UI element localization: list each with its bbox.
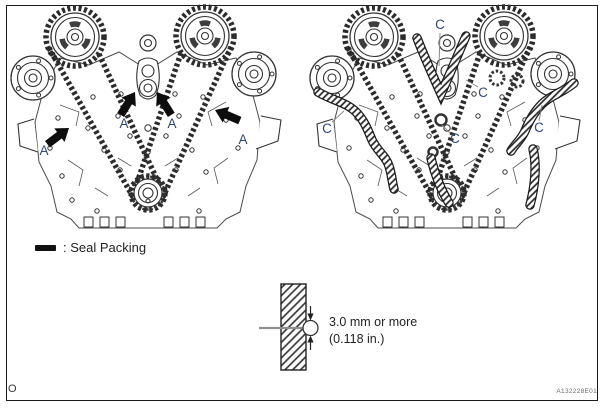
label-a-2: A (119, 116, 128, 131)
seal-bead-cross-section (303, 321, 318, 336)
label-a-4: A (238, 132, 247, 147)
label-a-1: A (39, 143, 48, 158)
legend-label: : Seal Packing (63, 240, 146, 255)
bead-size-callout: 3.0 mm or more (0.118 in.) (329, 314, 417, 348)
label-c-5: C (534, 120, 544, 135)
bead-size-metric: 3.0 mm or more (329, 314, 417, 331)
manual-figure-page: A A A A (0, 0, 605, 408)
label-a-3: A (167, 116, 176, 131)
legend: : Seal Packing (35, 240, 146, 255)
bead-size-imperial: (0.118 in.) (329, 331, 417, 348)
bead-size-detail (259, 284, 318, 370)
label-c-4: C (450, 131, 460, 146)
label-c-2: C (322, 121, 332, 136)
seal-packing-swatch (35, 245, 56, 251)
figure-code: A132228E01 (556, 388, 597, 395)
right-engine-diagram: C C C C C (310, 7, 580, 228)
label-c-3: C (478, 85, 488, 100)
figure-canvas: A A A A (0, 0, 605, 408)
corner-mark: O (8, 383, 17, 395)
left-engine-diagram: A A A A (11, 7, 281, 228)
label-c-1: C (435, 17, 445, 32)
